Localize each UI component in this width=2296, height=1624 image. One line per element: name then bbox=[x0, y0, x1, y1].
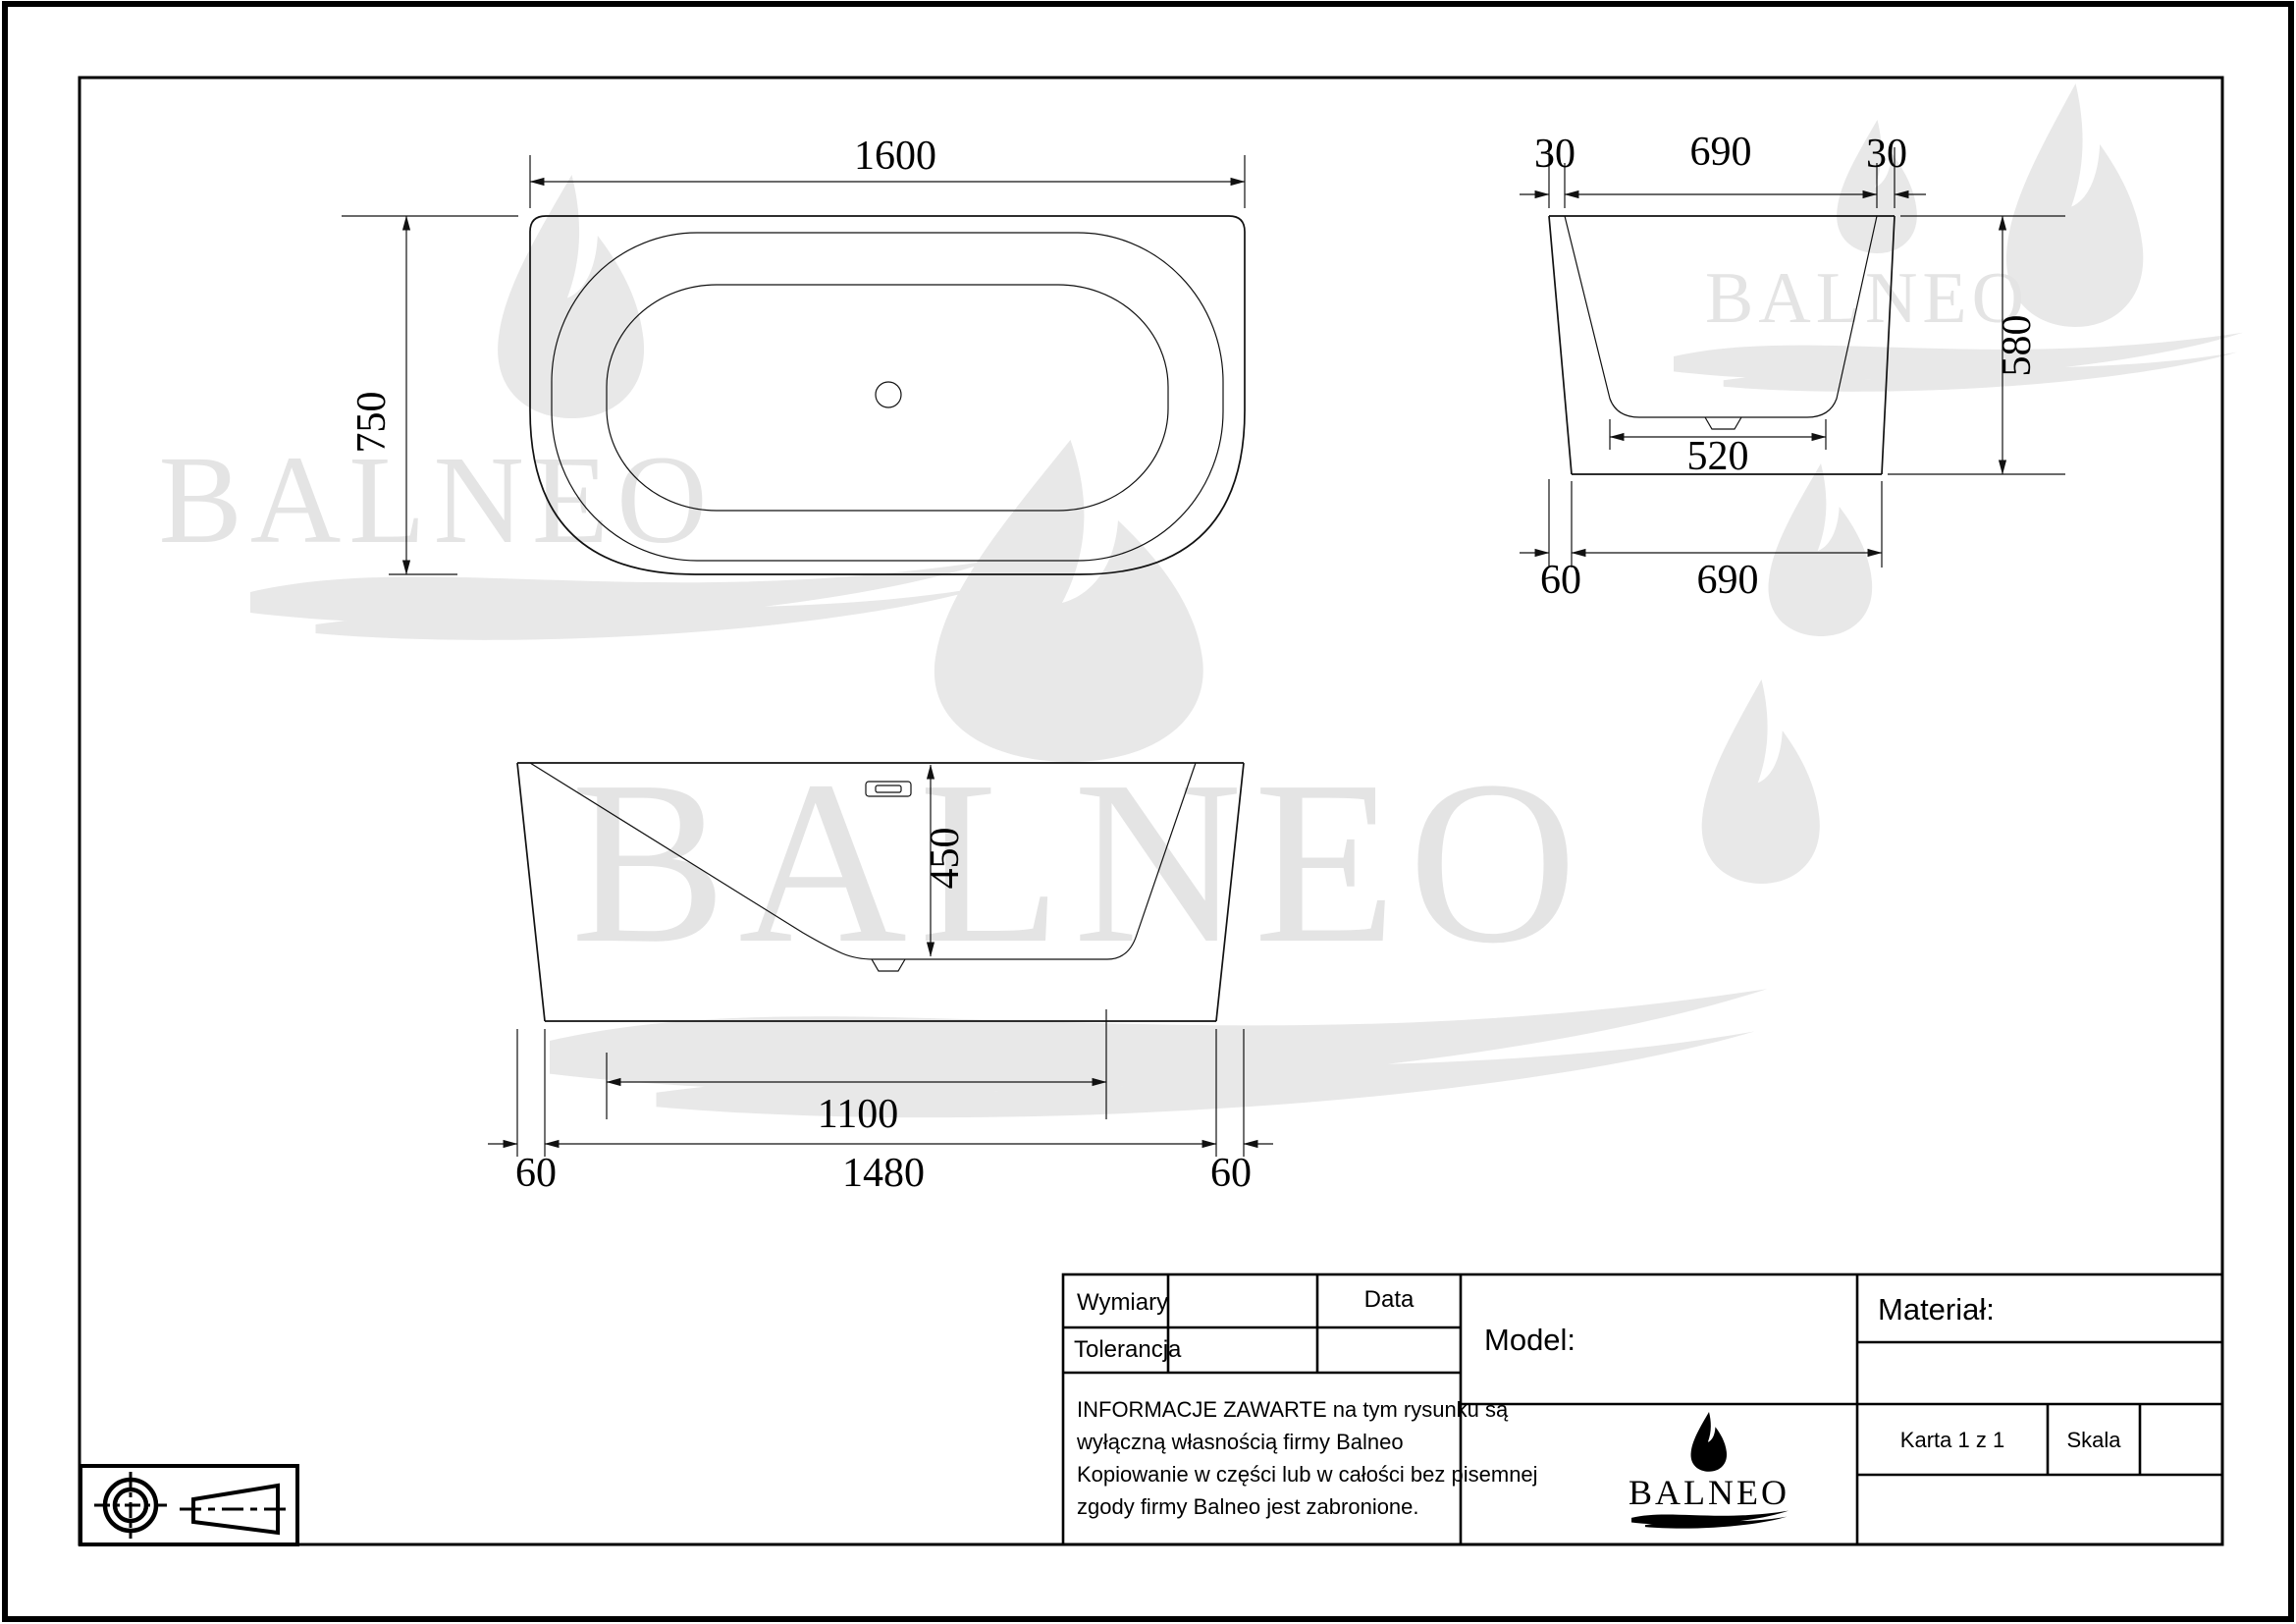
info-line: wyłączną własnością firmy Balneo bbox=[1076, 1430, 1404, 1454]
dim-side-floor-width-label: 520 bbox=[1687, 434, 1749, 479]
info-line: zgody firmy Balneo jest zabronione. bbox=[1077, 1494, 1419, 1519]
watermark-swoosh-icon bbox=[550, 989, 1767, 1117]
dim-side-offset-left-label: 30 bbox=[1534, 132, 1575, 177]
dim-front-inner-depth-label: 450 bbox=[923, 828, 968, 890]
watermark-swoosh-icon bbox=[1674, 333, 2243, 392]
dim-front-offset-left-label: 60 bbox=[515, 1151, 557, 1196]
balneo-flame-icon bbox=[1691, 1412, 1728, 1472]
drain-hole bbox=[876, 382, 901, 407]
info-line: Kopiowanie w części lub w całości bez pi… bbox=[1077, 1462, 1538, 1487]
dim-side-height-label: 580 bbox=[1995, 315, 2040, 377]
data-label: Data bbox=[1364, 1286, 1415, 1313]
balneo-logo: BALNEO bbox=[1629, 1412, 1789, 1529]
balneo-watermark: BALNEO BALNEO BALNEO bbox=[158, 83, 2243, 1117]
balneo-logo-text: BALNEO bbox=[1629, 1473, 1789, 1512]
dim-front-floor-length-label: 1100 bbox=[818, 1092, 898, 1137]
drawing-sheet: BALNEO BALNEO BALNEO 1600 750 bbox=[0, 0, 2296, 1624]
drain-notch bbox=[1705, 417, 1741, 429]
watermark-flame-icon bbox=[1702, 679, 1820, 884]
skala-label: Skala bbox=[2066, 1428, 2121, 1452]
wymiary-label: Wymiary bbox=[1077, 1289, 1168, 1316]
dim-plan-width-label: 1600 bbox=[854, 134, 936, 179]
watermark-flame-icon bbox=[934, 440, 1203, 762]
karta-label: Karta 1 z 1 bbox=[1900, 1428, 2004, 1452]
watermark-flame-icon bbox=[498, 175, 644, 418]
dim-plan-depth-label: 750 bbox=[349, 392, 395, 454]
title-block: Wymiary Data Tolerancja INFORMACJE ZAWAR… bbox=[1063, 1274, 2222, 1544]
watermark-text: BALNEO bbox=[158, 430, 715, 569]
dim-side-offset-right-label: 30 bbox=[1866, 132, 1907, 177]
balneo-logo-swoosh-icon bbox=[1631, 1511, 1789, 1529]
dim-side-top-width-label: 690 bbox=[1690, 130, 1752, 175]
dim-side-base-width-label: 690 bbox=[1697, 558, 1759, 603]
dim-side-base-offset-label: 60 bbox=[1540, 558, 1581, 603]
material-label: Materiał: bbox=[1878, 1292, 1995, 1326]
tolerancja-label: Tolerancja bbox=[1074, 1336, 1182, 1363]
watermark-text: BALNEO bbox=[1705, 258, 2029, 339]
projection-symbol-icon bbox=[80, 1466, 297, 1544]
info-line: INFORMACJE ZAWARTE na tym rysunku są bbox=[1077, 1397, 1509, 1422]
watermark-text: BALNEO bbox=[570, 733, 1588, 992]
dim-front-base-width-label: 1480 bbox=[842, 1151, 925, 1196]
watermark-flame-icon bbox=[1768, 463, 1872, 636]
model-label: Model: bbox=[1484, 1323, 1575, 1357]
dim-front-offset-right-label: 60 bbox=[1210, 1151, 1252, 1196]
watermark-swoosh-icon bbox=[250, 560, 996, 640]
